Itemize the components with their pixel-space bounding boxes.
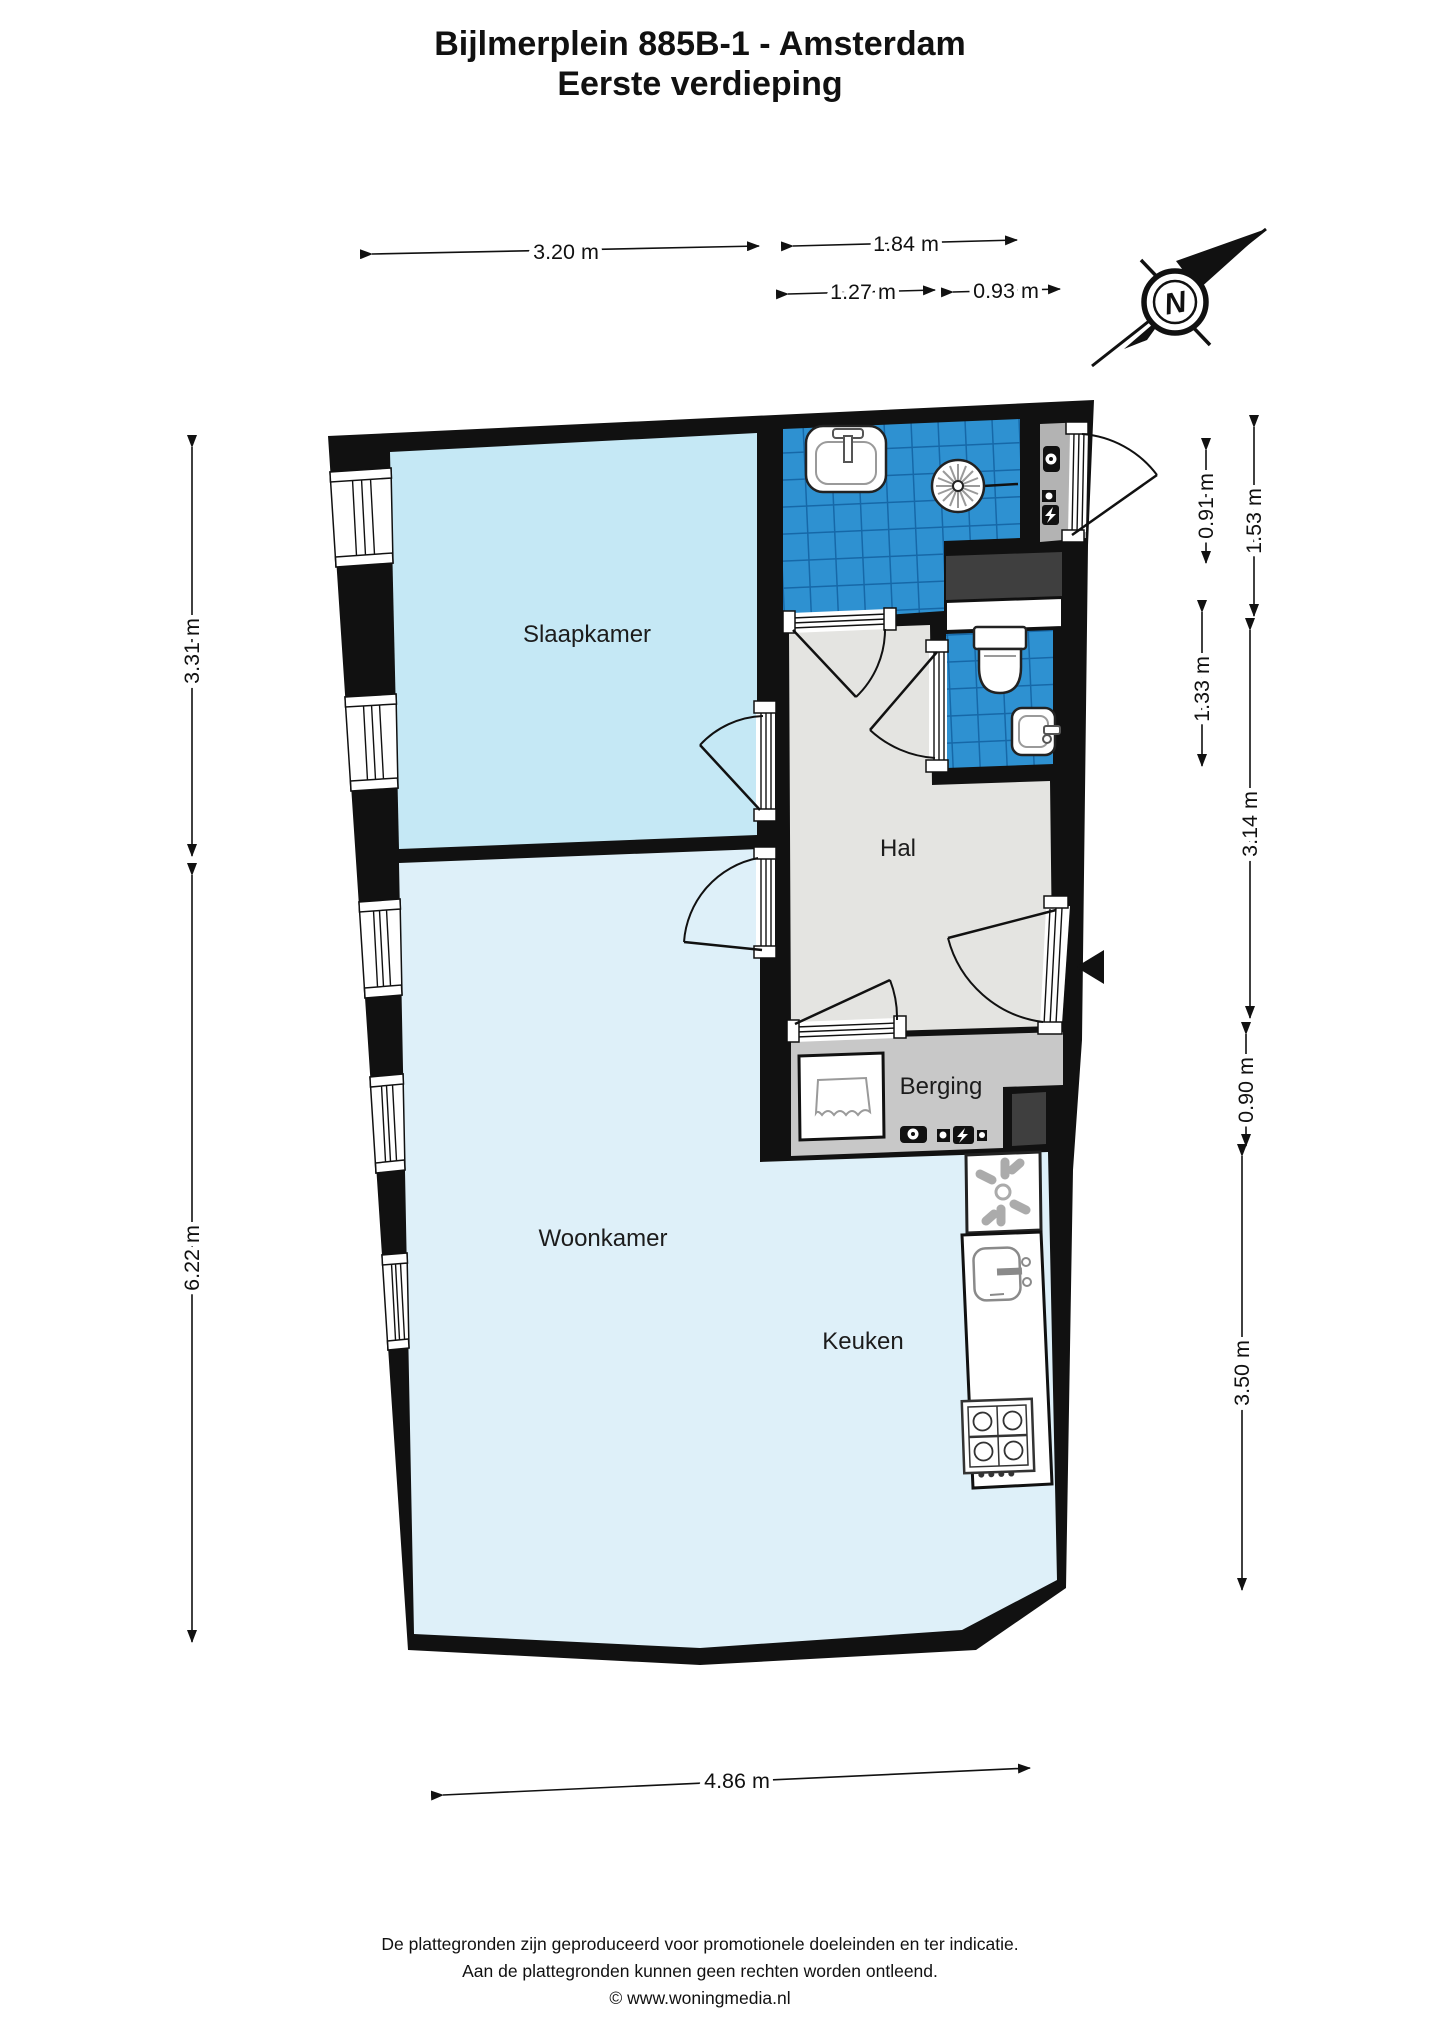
slaapkamer-label: Slaapkamer (523, 621, 651, 648)
dim-right-inner-1: 0.91 m (1194, 473, 1218, 539)
window-icon (382, 1253, 409, 1350)
dim-top-4: 0.93 m (973, 279, 1039, 303)
dim-left-2: 6.22 m (180, 1225, 204, 1291)
footer-line3: © www.woningmedia.nl (609, 1988, 790, 2008)
dim-right-inner-2: 1.33 m (1190, 656, 1214, 722)
dim-top-3: 1.27 m (830, 280, 896, 304)
kitchen-counter (962, 1232, 1052, 1488)
window-icon (370, 1074, 405, 1173)
floorplan-page: Bijlmerplein 885B-1 - Amsterdam Eerste v… (0, 0, 1440, 2036)
dim-top-1: 3.20 m (533, 240, 599, 264)
woonkamer-label: Woonkamer (539, 1225, 668, 1252)
stove-icon (962, 1399, 1034, 1478)
keuken-label: Keuken (822, 1328, 903, 1355)
bathroom-sink-icon (806, 426, 886, 492)
footer-disclaimer: De plattegronden zijn geproduceerd voor … (381, 1934, 1018, 2008)
dim-left-1: 3.31 m (180, 618, 204, 684)
page-title-line1: Bijlmerplein 885B-1 - Amsterdam (434, 25, 966, 63)
floor-plan: Bijlmerplein 885B-1 - Amsterdam Eerste v… (0, 0, 1440, 2036)
dim-bottom-1: 4.86 m (704, 1769, 770, 1793)
dim-top-2: 1.84 m (873, 232, 939, 256)
dim-right-outer-1: 1.53 m (1242, 488, 1266, 554)
footer-line2: Aan de plattegronden kunnen geen rechten… (462, 1961, 938, 1981)
meterkast-door-icon (1062, 422, 1157, 542)
shaft-top (946, 552, 1062, 600)
dim-right-outer-3: 0.90 m (1234, 1057, 1258, 1123)
toilet-sink-icon (1012, 708, 1060, 755)
dim-right-outer-4: 3.50 m (1230, 1340, 1254, 1406)
berging-label: Berging (900, 1073, 983, 1100)
ventilation-icon (966, 1152, 1041, 1233)
footer-line1: De plattegronden zijn geproduceerd voor … (381, 1934, 1018, 1954)
washing-machine-icon (799, 1053, 884, 1140)
toilet-icon (974, 627, 1026, 693)
north-arrow-icon: N (1092, 229, 1266, 366)
dim-right-outer-2: 3.14 m (1238, 791, 1262, 857)
shaft-berging (1012, 1092, 1046, 1146)
window-icon (345, 694, 398, 791)
page-title-line2: Eerste verdieping (557, 65, 842, 103)
window-icon (330, 468, 393, 567)
hal-label: Hal (880, 835, 916, 862)
window-icon (359, 899, 402, 998)
